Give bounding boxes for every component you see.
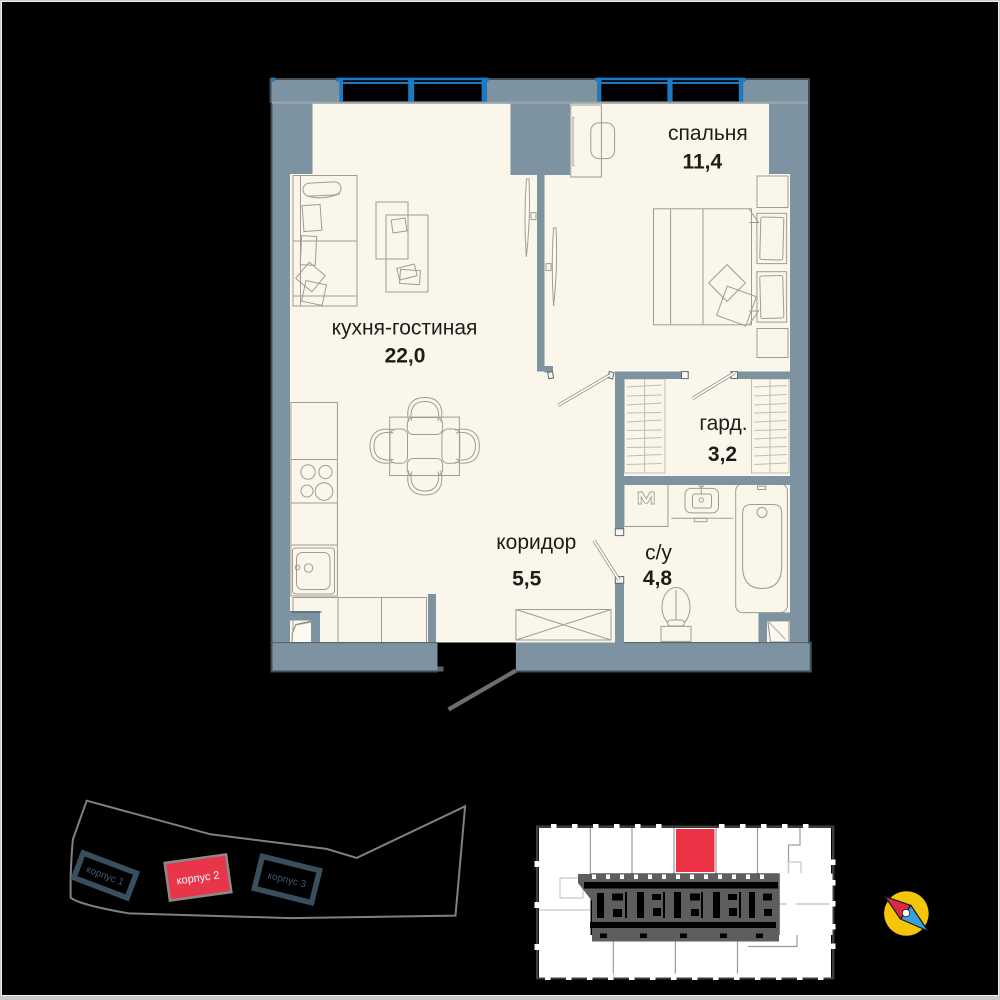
svg-text:кухня-гостиная: кухня-гостиная <box>332 317 478 340</box>
svg-text:гард.: гард. <box>699 412 747 435</box>
svg-text:3,2: 3,2 <box>708 443 737 466</box>
svg-text:5,5: 5,5 <box>512 568 542 591</box>
svg-text:коридор: коридор <box>496 531 576 554</box>
svg-text:4,8: 4,8 <box>643 567 673 590</box>
svg-text:11,4: 11,4 <box>682 151 722 174</box>
svg-text:спальня: спальня <box>668 122 748 145</box>
svg-text:22,0: 22,0 <box>385 345 426 368</box>
svg-text:с/у: с/у <box>645 542 672 565</box>
